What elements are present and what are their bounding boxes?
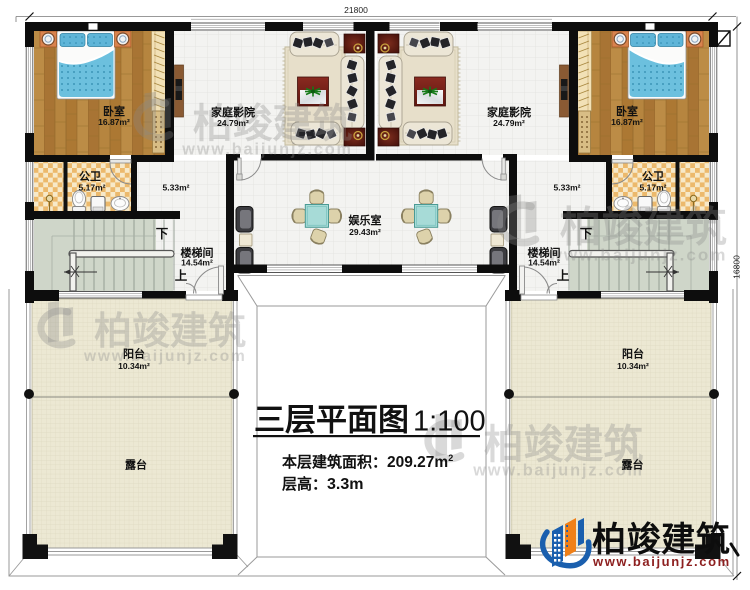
svg-text:24.79m²: 24.79m² [217, 118, 249, 128]
svg-text:上: 上 [175, 268, 188, 283]
svg-text:娱乐室: 娱乐室 [349, 213, 382, 227]
svg-text:14.54m²: 14.54m² [181, 258, 213, 268]
svg-text:29.43m²: 29.43m² [349, 227, 381, 237]
svg-text:卧室: 卧室 [103, 104, 125, 118]
svg-text:16800: 16800 [732, 255, 742, 279]
svg-text:www.baijunjz.com: www.baijunjz.com [592, 554, 731, 569]
svg-text:5.17m²: 5.17m² [79, 183, 106, 193]
svg-text:露台: 露台 [125, 458, 147, 472]
svg-text:5.33m²: 5.33m² [163, 183, 190, 193]
svg-text:www.baijunjz.com: www.baijunjz.com [548, 245, 728, 264]
svg-text:16.87m²: 16.87m² [98, 117, 130, 127]
svg-text:www.baijunjz.com: www.baijunjz.com [83, 348, 247, 365]
svg-text:公卫: 公卫 [79, 170, 101, 183]
svg-text:露台: 露台 [622, 458, 644, 472]
svg-text:10.34m²: 10.34m² [617, 361, 649, 371]
svg-text:24.79m²: 24.79m² [493, 118, 525, 128]
svg-text:阳台: 阳台 [622, 347, 644, 361]
svg-text:家庭影院: 家庭影院 [487, 105, 531, 119]
svg-text:www.baijunjz.com: www.baijunjz.com [472, 462, 644, 480]
svg-text:上: 上 [557, 268, 570, 283]
svg-text:卧室: 卧室 [616, 104, 638, 118]
svg-text:10.34m²: 10.34m² [118, 361, 150, 371]
svg-text:三层平面图1:100: 三层平面图1:100 [254, 403, 486, 438]
svg-text:16.87m²: 16.87m² [611, 117, 643, 127]
svg-text:下: 下 [580, 227, 593, 241]
svg-text:柏竣建筑: 柏竣建筑 [484, 423, 644, 467]
svg-text:本层建筑面积：209.27m2: 本层建筑面积：209.27m2 [282, 453, 453, 471]
svg-text:下: 下 [156, 227, 169, 241]
svg-text:阳台: 阳台 [123, 347, 145, 361]
svg-text:14.54m²: 14.54m² [528, 258, 560, 268]
svg-text:5.33m²: 5.33m² [554, 183, 581, 193]
svg-text:柏竣建筑: 柏竣建筑 [94, 311, 246, 353]
svg-text:层高：3.3m: 层高：3.3m [282, 475, 363, 493]
svg-text:家庭影院: 家庭影院 [211, 105, 255, 119]
svg-text:公卫: 公卫 [642, 170, 664, 183]
svg-text:5.17m²: 5.17m² [640, 183, 667, 193]
svg-text:www.baijunjz.com: www.baijunjz.com [181, 141, 353, 159]
svg-text:21800: 21800 [344, 5, 368, 15]
